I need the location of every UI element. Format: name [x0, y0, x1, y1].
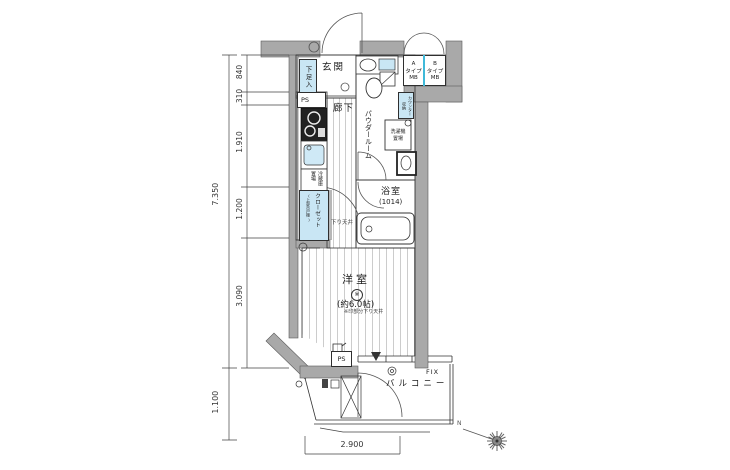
shoe-box-label: 下足入 — [303, 66, 313, 89]
western-room-label: 洋室 — [342, 274, 370, 286]
room-note-label: ※印部分下り天井 — [344, 310, 383, 315]
fix-window — [428, 356, 452, 362]
ps-box-bottom: PS — [331, 351, 352, 367]
dim-1200: 1.200 — [236, 191, 244, 227]
stove-icon — [301, 108, 327, 141]
mb-double-door-arcs — [404, 33, 444, 54]
mb-box-a: A タイプ MB — [403, 55, 424, 86]
kitchen-sink-icon — [301, 141, 327, 169]
fix-label: FIX — [426, 369, 439, 376]
genkan-circle-mark — [341, 83, 349, 91]
bathroom-size-label: (1014) — [379, 199, 402, 206]
outdoor-unit-hatch — [341, 376, 361, 418]
wall-top-mid — [360, 41, 404, 57]
mb-divider — [423, 55, 425, 86]
wall-diagonal — [266, 333, 313, 379]
dim-balcony-depth: 1.100 — [212, 384, 220, 420]
wall-bottom-left — [300, 366, 358, 378]
counter-storage-box: カウンター 収納 — [398, 92, 414, 119]
mb-box-b: B タイプ MB — [424, 55, 446, 86]
ps-bottom-label: PS — [337, 355, 345, 363]
closet-sub-label: (上部吊戸棚) — [307, 193, 312, 240]
entrance-circle-mark — [309, 42, 319, 52]
powder-door-arc — [358, 152, 386, 180]
dim-3090: 3.090 — [236, 278, 244, 314]
drain-double-circle-icon — [388, 367, 396, 375]
dim-total-height: 7.350 — [212, 174, 220, 214]
entrance-door-arc — [322, 13, 362, 53]
closet-box: (上部吊戸棚) クローゼット — [299, 190, 329, 241]
toilet-icon — [366, 72, 395, 98]
compass — [463, 429, 507, 451]
sliding-window — [358, 356, 415, 362]
meter-boxes-icon — [296, 379, 339, 388]
washer-space-label: 洗濯機 置場 — [386, 124, 410, 146]
floor-plan: 下足入 PS 冷蔵庫 置場 (上部吊戸棚) クローゼット カウンター 収納 洗濯… — [0, 0, 730, 470]
shoe-box: 下足入 — [299, 59, 317, 96]
north-label: N — [457, 421, 462, 427]
balcony-label: バルコニー — [386, 380, 448, 389]
plan-linework — [0, 0, 730, 470]
dim-1910: 1.910 — [236, 124, 244, 160]
lowered-ceiling-label: 下り天井 — [331, 221, 353, 227]
wall-mb-right — [446, 41, 462, 102]
powder-room-label: パウダールーム — [364, 110, 371, 174]
corridor-label: 廊下 — [333, 104, 354, 114]
wall-right — [415, 102, 428, 368]
mark-glyph: ※ — [354, 292, 359, 298]
ps-top-label: PS — [301, 96, 309, 104]
dim-310: 310 — [236, 81, 244, 111]
wall-top-left — [261, 41, 320, 57]
closet-label: クローゼット — [313, 193, 322, 240]
water-heater-icon — [397, 152, 416, 175]
genkan-label: 玄関 — [322, 63, 345, 73]
dim-width: 2.900 — [335, 441, 369, 449]
washbasin-icon — [356, 56, 398, 74]
ps-box-top: PS — [297, 92, 326, 108]
wall-closet-bottom — [296, 240, 330, 248]
bathtub-icon — [357, 213, 414, 244]
bathroom-label: 浴室 — [381, 188, 401, 197]
